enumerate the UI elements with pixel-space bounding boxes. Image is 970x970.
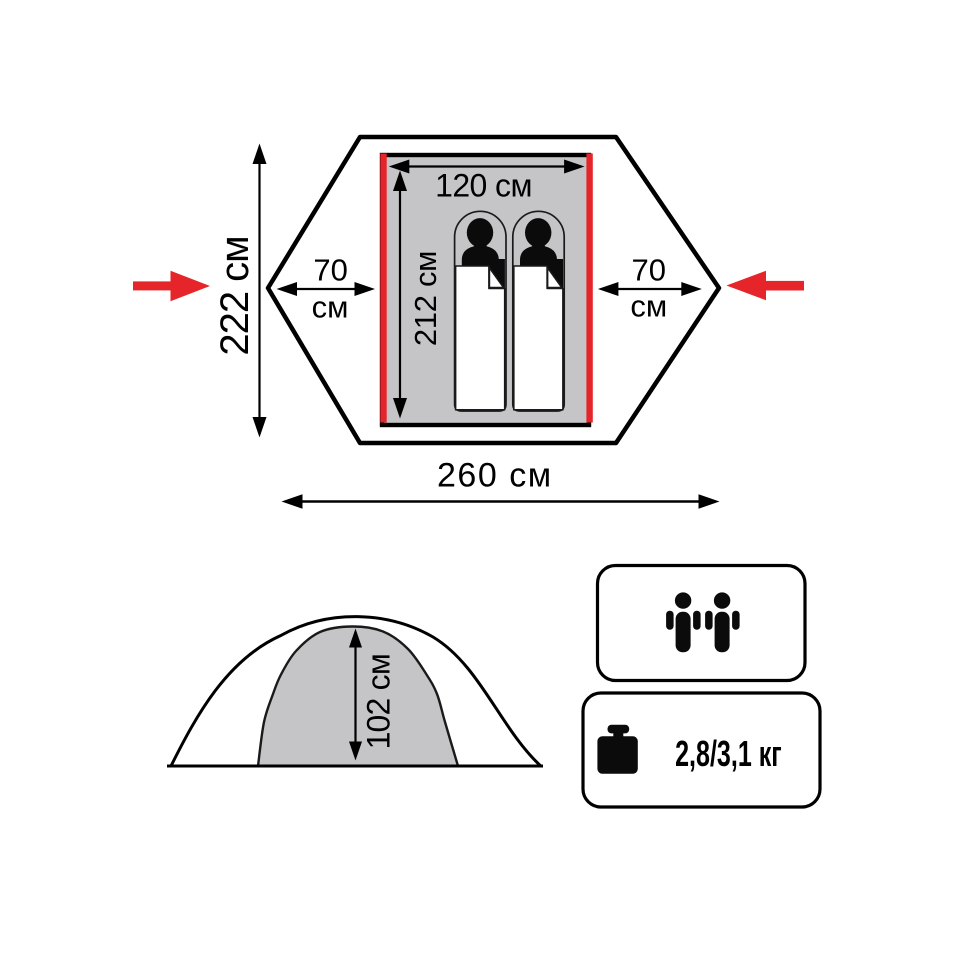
svg-text:см: см bbox=[312, 290, 349, 325]
svg-text:222 см: 222 см bbox=[213, 236, 257, 355]
svg-text:2,8/3,1 кг: 2,8/3,1 кг bbox=[675, 734, 782, 775]
svg-text:70: 70 bbox=[313, 253, 347, 288]
svg-text:120 см: 120 см bbox=[435, 168, 532, 204]
svg-text:260 см: 260 см bbox=[437, 457, 553, 495]
svg-text:см: см bbox=[630, 289, 667, 324]
svg-text:70: 70 bbox=[632, 253, 666, 288]
svg-text:102 см: 102 см bbox=[361, 654, 397, 749]
svg-text:212 см: 212 см bbox=[408, 251, 443, 346]
